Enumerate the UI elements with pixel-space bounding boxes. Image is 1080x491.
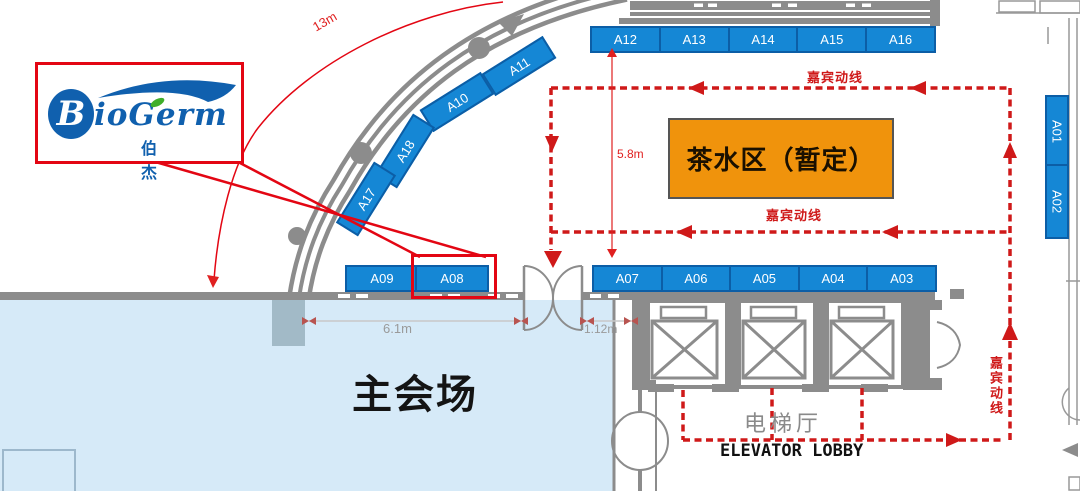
booth-a01: A01 (1045, 95, 1069, 168)
right-door-arrow-icon (1062, 443, 1078, 457)
booth-a08-highlight (411, 254, 497, 299)
booth-a11: A11 (482, 36, 557, 96)
booth-a10: A10 (420, 72, 495, 132)
corridor-door (612, 412, 668, 470)
column (350, 142, 372, 164)
dim-label-1-12m: 1.12m (584, 322, 617, 336)
booth-a03: A03 (866, 267, 935, 290)
shaft-jambs (648, 384, 888, 392)
hall-top-wall (0, 292, 632, 300)
column (468, 37, 490, 59)
wall-stub (272, 300, 305, 346)
guest-flow-label-right: 嘉宾动线 (986, 356, 1005, 416)
guest-flow-label-mid: 嘉宾动线 (766, 205, 822, 224)
booth-a09: A09 (345, 265, 419, 292)
stage-outline (2, 449, 76, 491)
main-hall-label: 主会场 (352, 362, 478, 420)
walkway-direction-arrow-icon (498, 14, 524, 36)
tea-area: 茶水区（暂定） (668, 118, 894, 199)
block-side-door (937, 322, 960, 368)
top-right-structure (996, 1, 1080, 490)
biogerm-chinese-name: 伯杰 (141, 135, 241, 183)
booth-a05: A05 (729, 267, 798, 290)
booth-row-mid-right: A07 A06 A05 A04 A03 (592, 265, 937, 292)
booth-a16: A16 (865, 28, 934, 51)
booth-a17: A17 (336, 162, 396, 237)
elevator-shaft-x (652, 321, 893, 378)
booth-a15: A15 (796, 28, 865, 51)
floor-plan: A12 A13 A14 A15 A16 A09 A08 A07 A06 A05 … (0, 0, 1080, 491)
dimension-5-8m (607, 48, 617, 258)
main-hall-area (0, 300, 614, 491)
escalator-band (619, 0, 940, 26)
booth-a13: A13 (659, 28, 728, 51)
dim-label-5-8m: 5.8m (617, 147, 644, 161)
column (288, 227, 306, 245)
booth-row-top: A12 A13 A14 A15 A16 (590, 26, 936, 53)
booth-a06: A06 (661, 267, 730, 290)
booth-a02: A02 (1045, 164, 1069, 239)
guest-flow-label-top: 嘉宾动线 (807, 67, 863, 86)
booth-a14: A14 (728, 28, 797, 51)
elevator-lobby-label-en: ELEVATOR LOBBY (720, 441, 863, 461)
dim-label-13m: 13m (310, 9, 339, 35)
booth-a04: A04 (798, 267, 867, 290)
booth-a12: A12 (592, 28, 659, 51)
booth-a07: A07 (594, 267, 661, 290)
elevator-lobby-label-cn: 电梯厅 (744, 406, 822, 438)
biogerm-mark-icon: B (48, 89, 94, 139)
hall-side-walls (614, 300, 656, 491)
biogerm-logo-box: B ioGerm 伯杰 (35, 62, 244, 164)
dimension-13m-arc (207, 2, 503, 288)
elevator-doors (661, 307, 884, 318)
elevator-block (632, 288, 964, 392)
dim-label-6-1m: 6.1m (383, 321, 412, 336)
